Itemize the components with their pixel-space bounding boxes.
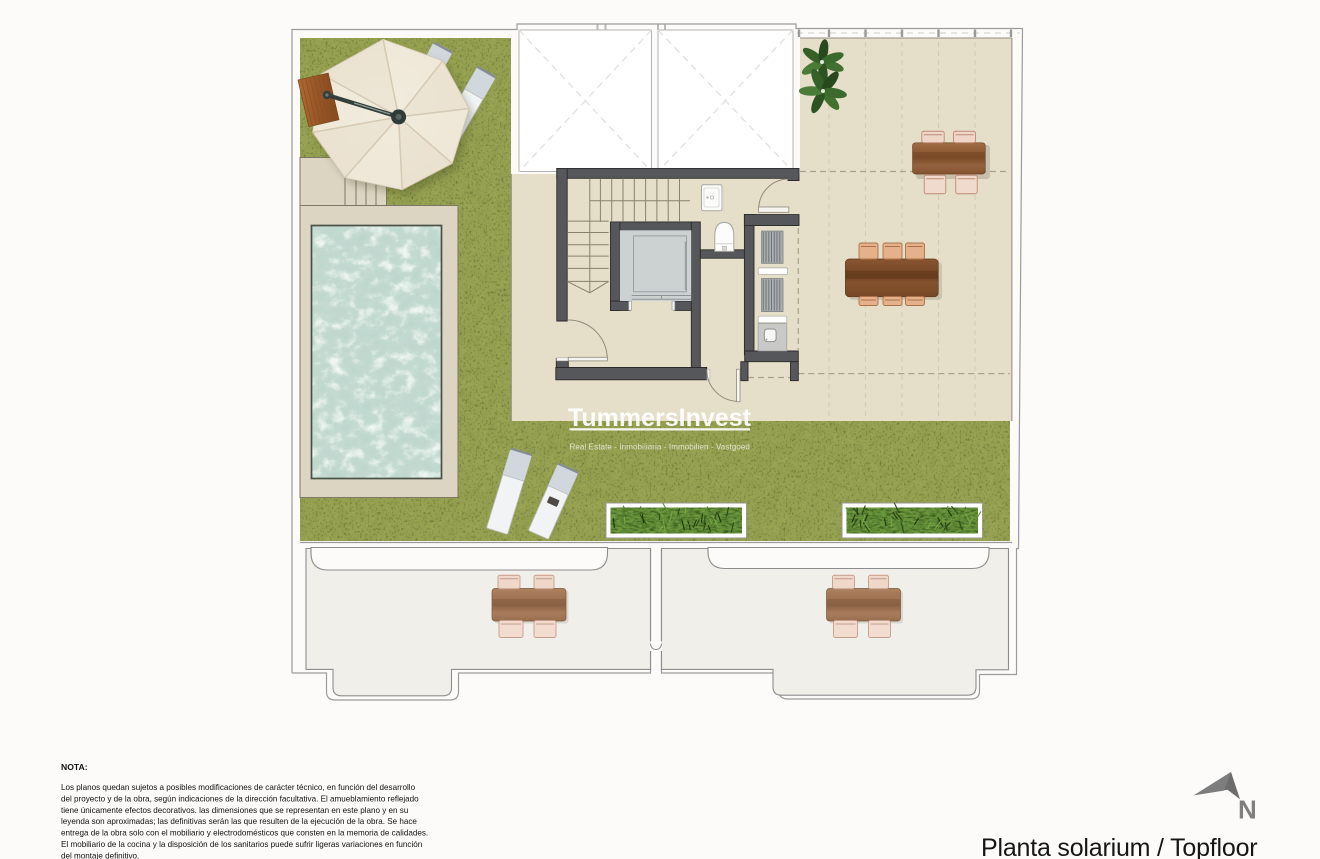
svg-text:entrega de la obra solo con el: entrega de la obra solo con el mobiliari… (61, 829, 428, 838)
svg-text:Planta solarium / Topfloor: Planta solarium / Topfloor (981, 834, 1257, 859)
svg-text:del proyecto y de la obra, seg: del proyecto y de la obra, según indicac… (61, 794, 419, 803)
svg-text:Los planos quedan sujetos a po: Los planos quedan sujetos a posibles mod… (61, 783, 416, 792)
svg-text:NOTA:: NOTA: (61, 762, 88, 772)
svg-text:N: N (1238, 795, 1257, 825)
svg-text:TummersInvest: TummersInvest (568, 404, 752, 432)
svg-text:leyenda son aproximadas; las d: leyenda son aproximadas; las definitivas… (61, 817, 417, 826)
svg-text:tiene únicamente efectos decor: tiene únicamente efectos decorativos. la… (61, 806, 408, 815)
svg-text:del montaje definitivo.: del montaje definitivo. (61, 851, 139, 859)
svg-text:Real Estate - Inmobiliaria - I: Real Estate - Inmobiliaria - Immobilien … (570, 443, 750, 452)
svg-text:El mobiliario de la cocina y l: El mobiliario de la cocina y la disposic… (61, 840, 422, 849)
